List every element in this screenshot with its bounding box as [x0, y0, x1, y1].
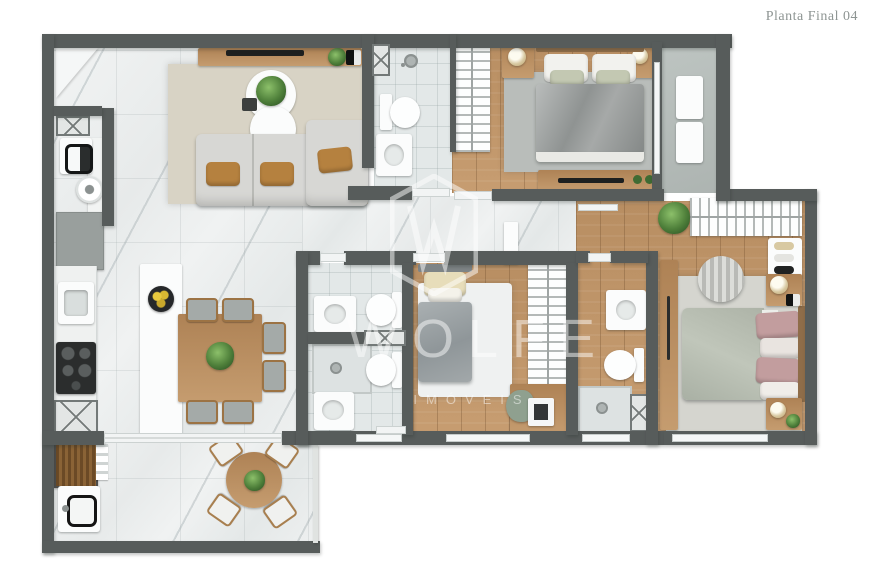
window-bath3 [356, 434, 402, 442]
wall-bathstack-right [402, 263, 413, 435]
wall-service-horizontal [54, 106, 102, 116]
suite-pillow-2 [760, 338, 800, 358]
terrace-table-plant [244, 470, 265, 491]
bbq-grill [54, 440, 98, 488]
window-suite [672, 434, 768, 442]
wall-suite-bath-right [646, 251, 658, 445]
wall-balcony-right [716, 34, 730, 201]
wall-master-bottom [492, 189, 664, 201]
basin-bath1 [384, 144, 404, 166]
toilet-bowl-suite [604, 350, 636, 380]
suite-pillow-1 [755, 310, 801, 339]
basin-bath3 [322, 400, 344, 420]
shower-head-bath1 [404, 54, 418, 68]
door-suite-hall [578, 204, 618, 211]
balcony-bench-upper [676, 76, 703, 119]
door-bath2 [320, 253, 346, 262]
dining-table-plant [206, 342, 234, 370]
sofa-pillow-right [317, 146, 353, 173]
door-master [454, 191, 492, 200]
terrace-sink-faucet [62, 505, 69, 512]
master-soundbar [558, 178, 624, 183]
shower-bath3 [312, 344, 372, 394]
service-cabinet [56, 212, 104, 270]
terrace-sink-basin [67, 495, 97, 527]
sofa-pillow-middle [260, 162, 294, 186]
shoe-pair-3 [774, 266, 794, 274]
bbq-tools [96, 444, 108, 480]
kitchen-base-cabinet [54, 400, 98, 434]
bedroom3-bed [418, 264, 472, 382]
tv [226, 50, 304, 56]
entry-door-leaf [56, 48, 98, 98]
dining-chair-2 [222, 298, 254, 322]
suite-lamp-top [770, 276, 788, 294]
master-closet [454, 40, 490, 152]
suite-closet-handle [667, 296, 670, 360]
shower-head-suite [596, 402, 608, 414]
laundry-sink-basin [65, 144, 93, 174]
sofa-pillow-left [206, 162, 240, 186]
shoe-pair-2 [774, 254, 794, 262]
dining-chair-6 [262, 360, 286, 392]
master-sideboard-plant-1 [633, 175, 642, 184]
dining-chair-5 [262, 322, 286, 354]
wall-bath1-bottom [348, 186, 412, 200]
wall-dining-terrace-left [42, 431, 104, 445]
wall-suite-top [716, 189, 817, 201]
dining-chair-1 [186, 298, 218, 322]
kitchen-sink-basin [64, 290, 88, 316]
wall-left [42, 34, 54, 553]
shower-head-bath3 [330, 362, 342, 374]
suite-duvet [682, 308, 764, 400]
suite-nightstand-plant [786, 414, 800, 428]
door-bath3 [376, 426, 406, 434]
suite-pillow-3 [755, 357, 800, 385]
dining-chair-3 [186, 400, 218, 424]
wall-suite-bath-top-2 [610, 251, 648, 263]
toilet-bowl-bath3 [366, 354, 396, 386]
coffee-table-tray [242, 98, 257, 111]
wall-bathstack-left [296, 251, 308, 445]
wall-service-vertical [102, 108, 114, 226]
bedroom3-wardrobe [528, 260, 568, 388]
basin-suite-bath [616, 300, 636, 320]
door-bath1 [412, 188, 450, 197]
plan-title: Planta Final 04 [766, 9, 858, 25]
wall-suite-right [805, 189, 817, 445]
suite-plant [658, 202, 690, 234]
living-duct [372, 44, 390, 76]
master-balcony-glass [654, 62, 660, 174]
suite-wardrobe [690, 198, 802, 236]
bedroom3-laptop-screen [534, 404, 548, 420]
wall-bathstack-top-3 [444, 251, 576, 265]
window-suite-bath [582, 434, 630, 442]
toilet-bowl-bath1 [390, 97, 420, 128]
basin-bath2 [324, 304, 346, 324]
washing-machine [76, 176, 103, 203]
wall-bottom-left [42, 541, 320, 553]
wall-closet-divider [450, 34, 456, 152]
toilet-bowl-bath2 [366, 294, 396, 326]
bedroom3-cushion [428, 288, 462, 302]
fruit-bowl [148, 286, 174, 312]
suite-pouf [698, 256, 744, 302]
console-plant [328, 48, 346, 66]
hall-floor [366, 196, 578, 257]
dining-chair-4 [222, 400, 254, 424]
master-lamp-left [508, 48, 526, 66]
master-bed [536, 42, 644, 162]
console-speaker [346, 50, 361, 65]
door-bedroom3 [413, 253, 445, 262]
floor-plan-canvas: Planta Final 04 WOLFE IMÓVEIS [0, 0, 870, 580]
suite-bed [682, 306, 806, 402]
suite-lamp-bottom [770, 402, 786, 418]
balcony-bench-lower [676, 122, 703, 163]
terrace-sliding-door [104, 433, 282, 443]
bedroom3-headboard [418, 264, 472, 272]
master-balcony-floor [662, 48, 718, 193]
service-duct [56, 116, 90, 136]
terrace-rail [313, 445, 318, 543]
wall-bedroom3-right [566, 263, 578, 435]
window-bedroom3 [446, 434, 530, 442]
bedroom3-duvet [418, 302, 472, 382]
shoe-pair-1 [774, 242, 794, 250]
master-sheet-edge [536, 152, 644, 162]
door-suite-bath [588, 253, 611, 262]
coffee-table-plant [256, 76, 286, 106]
bath-divider-duct [364, 330, 406, 346]
master-duvet [536, 84, 644, 154]
suite-decor-box [786, 294, 800, 306]
cooktop [56, 342, 96, 394]
